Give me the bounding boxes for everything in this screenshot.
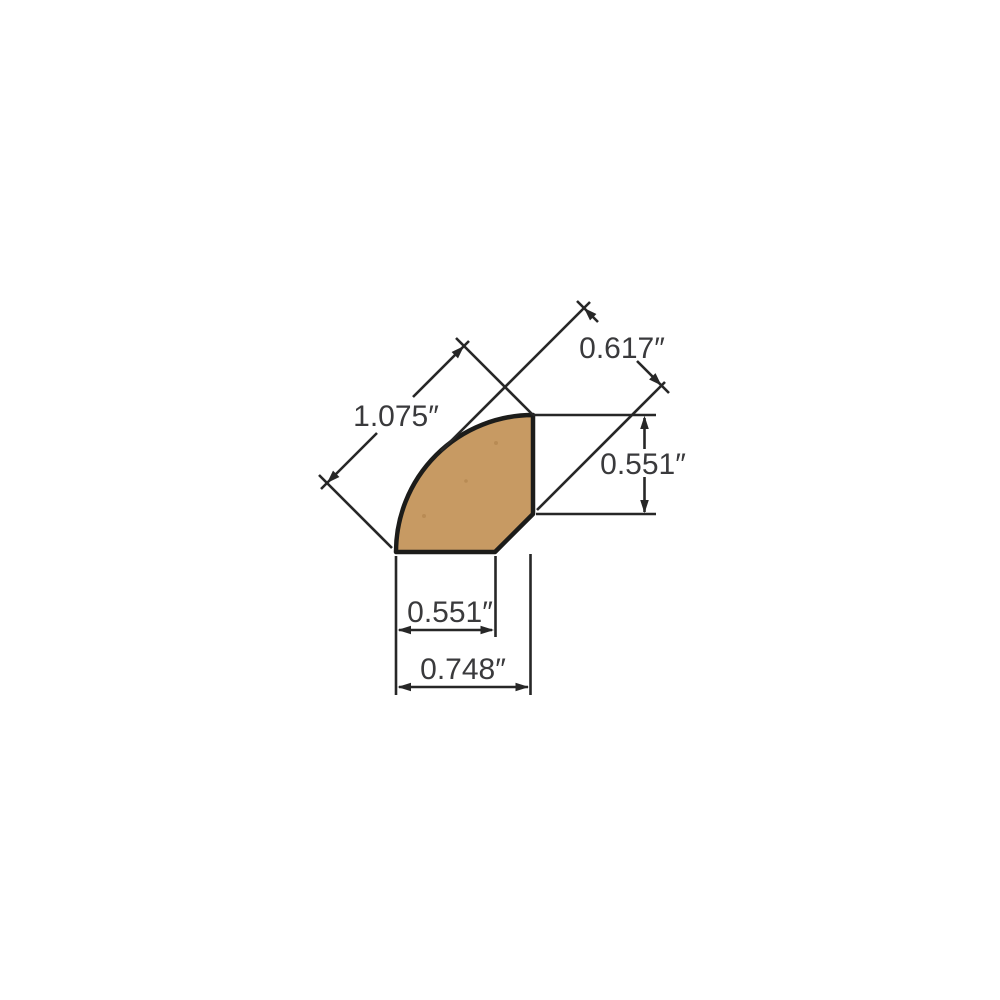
drawing-canvas: 1.075″ 0.617″ 0.551″ 0.551″ 0.748″ bbox=[0, 0, 1000, 1000]
extension-line-top-corner-diagonal bbox=[456, 338, 533, 415]
extension-line-bottom-left-diagonal bbox=[319, 475, 392, 548]
arrowhead-down-icon bbox=[640, 500, 649, 513]
molding-profile bbox=[396, 415, 533, 552]
arrowhead-left-icon bbox=[398, 683, 412, 691]
molding-dimension-diagram: 1.075″ 0.617″ 0.551″ 0.551″ 0.748″ bbox=[0, 0, 1000, 1000]
wood-speckle-dot bbox=[494, 441, 498, 445]
dimension-label-right-side-height: 0.551″ bbox=[600, 448, 686, 481]
wood-speckle-dot bbox=[464, 479, 468, 483]
dimension-label-diagonal-depth: 0.617″ bbox=[579, 332, 665, 365]
dimension-label-bottom-overall-width: 0.748″ bbox=[420, 653, 506, 686]
arrowhead-right-icon bbox=[516, 683, 530, 691]
molding-profile-shape bbox=[396, 415, 533, 552]
wood-speckle-dot bbox=[422, 514, 426, 518]
arrowhead-up-icon bbox=[640, 416, 649, 429]
dimension-label-curve-face-width: 1.075″ bbox=[353, 400, 439, 433]
dimension-label-bottom-flat-width: 0.551″ bbox=[407, 596, 493, 629]
